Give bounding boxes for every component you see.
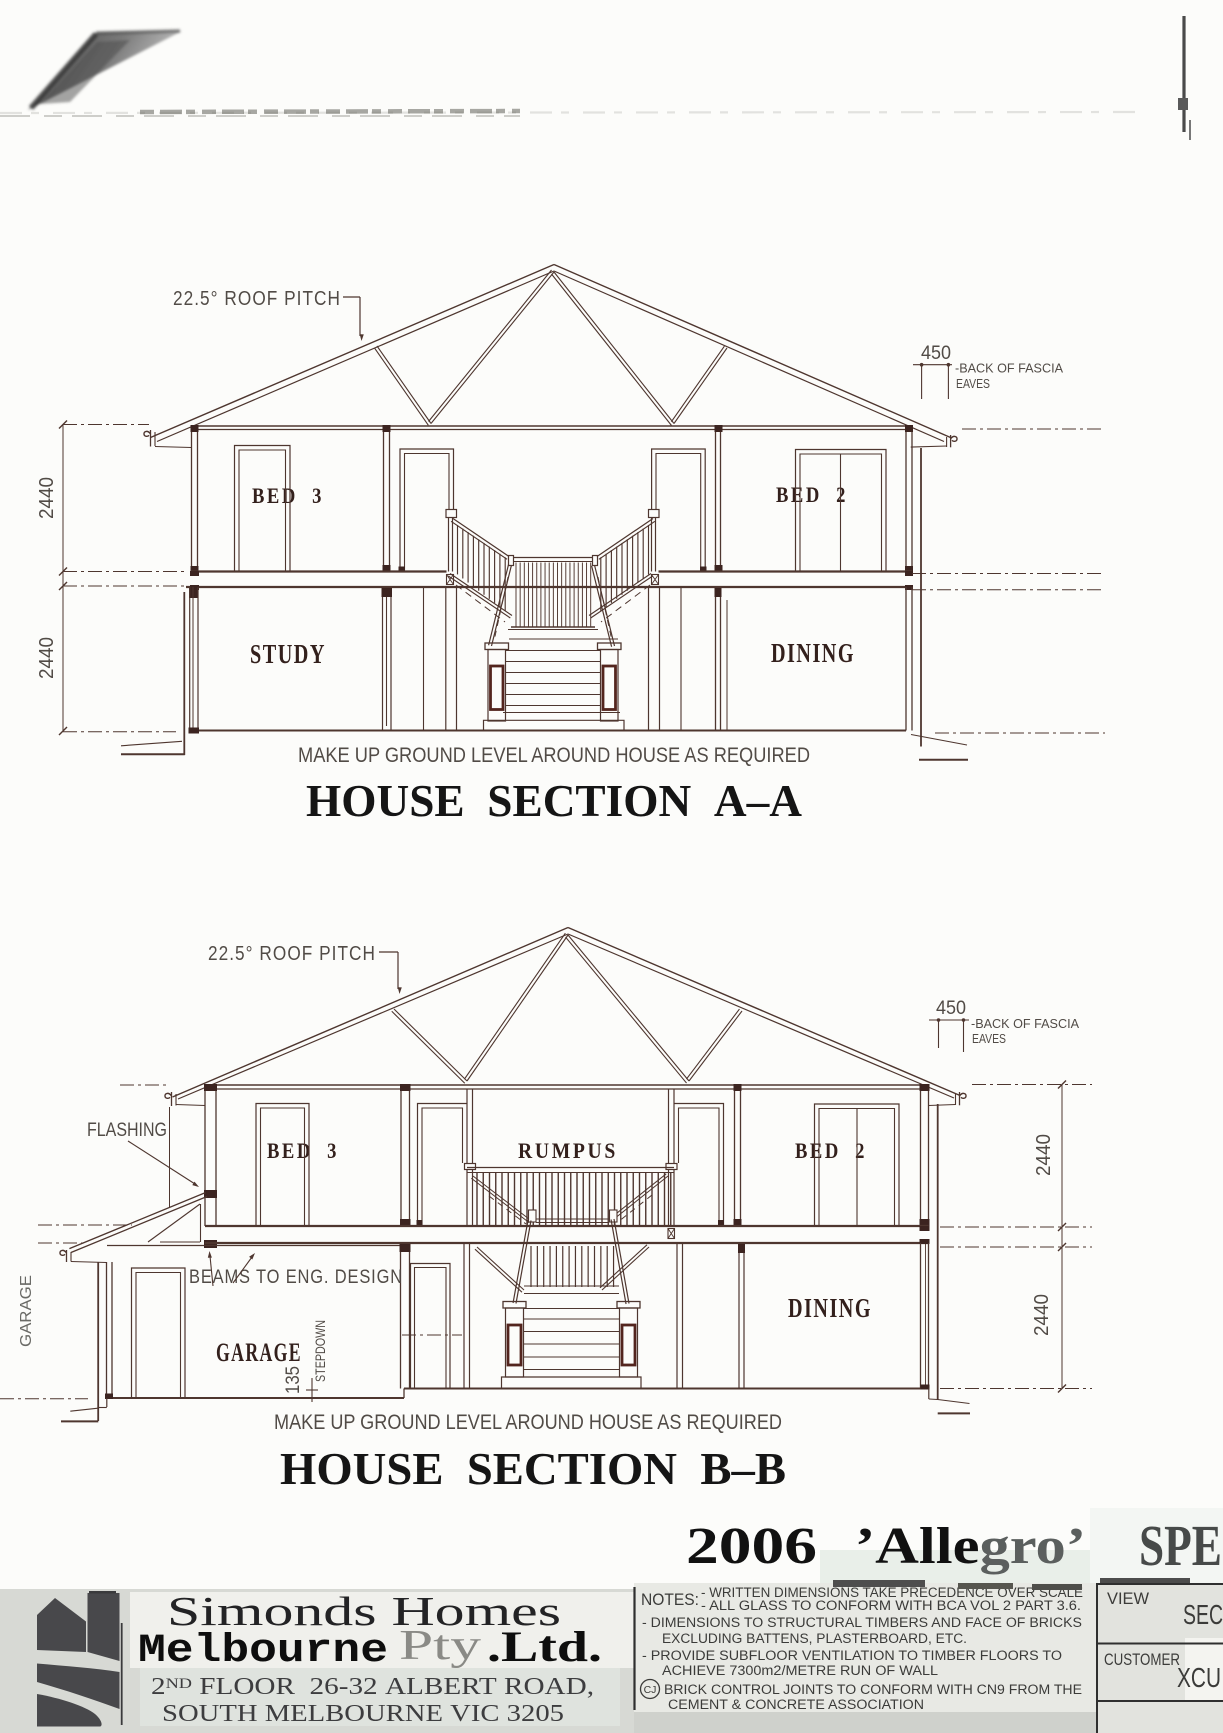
svg-text:22.5° ROOF PITCH: 22.5° ROOF PITCH bbox=[173, 288, 341, 310]
svg-text:XCU: XCU bbox=[1177, 1662, 1221, 1693]
svg-text:-BACK OF FASCIA: -BACK OF FASCIA bbox=[955, 361, 1063, 376]
svg-text:GARAGE: GARAGE bbox=[216, 1338, 302, 1367]
svg-text:GARAGE: GARAGE bbox=[18, 1275, 35, 1347]
svg-text:SPE: SPE bbox=[1139, 1513, 1222, 1578]
svg-text:CEMENT & CONCRETE ASSOCIATION: CEMENT & CONCRETE ASSOCIATION bbox=[668, 1697, 924, 1712]
svg-text:SOUTH MELBOURNE VIC 3205: SOUTH MELBOURNE VIC 3205 bbox=[162, 1701, 564, 1727]
svg-text:22.5° ROOF PITCH: 22.5° ROOF PITCH bbox=[208, 943, 376, 965]
svg-text:RUMPUS: RUMPUS bbox=[518, 1138, 618, 1163]
svg-text:2006: 2006 bbox=[686, 1518, 817, 1575]
svg-text:BRICK CONTROL JOINTS TO CONFOR: BRICK CONTROL JOINTS TO CONFORM WITH CN9… bbox=[664, 1682, 1082, 1697]
svg-text:BED 2: BED 2 bbox=[776, 482, 848, 507]
svg-text:2ND FLOOR 26-32 ALBERT ROAD,: 2ND FLOOR 26-32 ALBERT ROAD, bbox=[151, 1674, 594, 1700]
svg-text:2440: 2440 bbox=[36, 637, 58, 679]
svg-text:.Ltd.: .Ltd. bbox=[487, 1624, 602, 1671]
svg-text:-BACK OF FASCIA: -BACK OF FASCIA bbox=[971, 1016, 1079, 1031]
svg-text:- PROVIDE SUBFLOOR VENTILATION: - PROVIDE SUBFLOOR VENTILATION TO TIMBER… bbox=[642, 1648, 1062, 1663]
svg-text:- ALL GLASS TO CONFORM WITH BC: - ALL GLASS TO CONFORM WITH BCA VOL 2 PA… bbox=[701, 1598, 1081, 1613]
svg-text:2440: 2440 bbox=[36, 477, 58, 519]
svg-text:HOUSE SECTION A–A: HOUSE SECTION A–A bbox=[306, 775, 802, 826]
svg-text:BED 3: BED 3 bbox=[267, 1138, 339, 1163]
svg-text:STEPDOWN: STEPDOWN bbox=[313, 1320, 328, 1382]
svg-text:CJ: CJ bbox=[644, 1684, 657, 1696]
svg-text:EAVES: EAVES bbox=[956, 376, 990, 391]
svg-text:FLASHING: FLASHING bbox=[87, 1120, 167, 1141]
svg-text:ACHIEVE 7300m2/METRE RUN OF WA: ACHIEVE 7300m2/METRE RUN OF WALL bbox=[662, 1663, 939, 1678]
svg-text:DINING: DINING bbox=[788, 1293, 872, 1323]
svg-text:’Allegro’: ’Allegro’ bbox=[855, 1518, 1086, 1575]
svg-text:450: 450 bbox=[921, 343, 951, 364]
svg-text:VIEW: VIEW bbox=[1107, 1589, 1149, 1608]
svg-text:BEAMS TO ENG. DESIGN: BEAMS TO ENG. DESIGN bbox=[189, 1266, 403, 1288]
svg-text:450: 450 bbox=[936, 998, 966, 1019]
svg-text:EAVES: EAVES bbox=[972, 1031, 1006, 1046]
svg-text:SEC: SEC bbox=[1183, 1599, 1223, 1630]
svg-text:DINING: DINING bbox=[771, 638, 855, 668]
svg-text:NOTES:: NOTES: bbox=[641, 1591, 699, 1609]
svg-text:Melbourne: Melbourne bbox=[138, 1629, 388, 1674]
svg-text:Pty: Pty bbox=[399, 1623, 481, 1669]
svg-text:BED 3: BED 3 bbox=[252, 483, 324, 508]
svg-text:135: 135 bbox=[283, 1366, 304, 1394]
svg-text:STUDY: STUDY bbox=[250, 639, 326, 669]
svg-text:2440: 2440 bbox=[1031, 1294, 1053, 1336]
svg-text:CUSTOMER: CUSTOMER bbox=[1104, 1650, 1180, 1669]
svg-text:EXCLUDING BATTENS, PLASTERBOAR: EXCLUDING BATTENS, PLASTERBOARD, ETC. bbox=[662, 1631, 967, 1646]
svg-text:HOUSE SECTION B–B: HOUSE SECTION B–B bbox=[280, 1443, 786, 1494]
svg-text:BED 2: BED 2 bbox=[795, 1138, 867, 1163]
svg-text:MAKE UP GROUND LEVEL AROUND HO: MAKE UP GROUND LEVEL AROUND HOUSE AS REQ… bbox=[298, 744, 810, 767]
svg-text:2440: 2440 bbox=[1033, 1134, 1055, 1176]
svg-text:- DIMENSIONS TO STRUCTURAL TIM: - DIMENSIONS TO STRUCTURAL TIMBERS AND F… bbox=[642, 1615, 1082, 1630]
svg-text:MAKE UP GROUND LEVEL AROUND HO: MAKE UP GROUND LEVEL AROUND HOUSE AS REQ… bbox=[274, 1411, 782, 1434]
